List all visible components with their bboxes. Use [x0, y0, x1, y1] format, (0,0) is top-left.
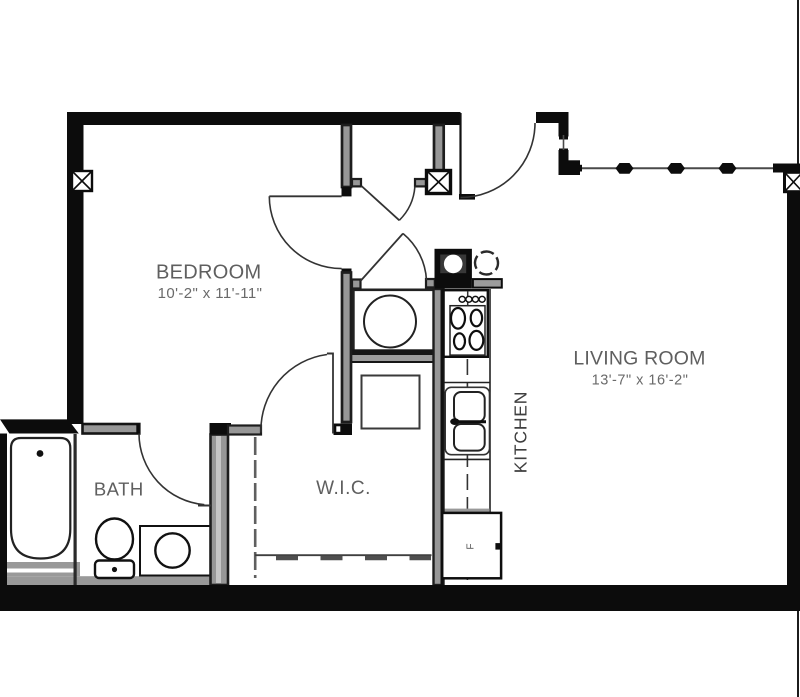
svg-text:BEDROOM: BEDROOM: [156, 262, 261, 284]
svg-text:LIVING ROOM: LIVING ROOM: [573, 348, 705, 370]
svg-text:BATH: BATH: [94, 478, 144, 499]
svg-text:10'-2" x 11'-11": 10'-2" x 11'-11": [158, 285, 263, 302]
svg-text:KITCHEN: KITCHEN: [511, 391, 531, 473]
svg-text:W.I.C.: W.I.C.: [316, 478, 371, 499]
svg-text:F: F: [466, 543, 477, 549]
svg-text:13'-7" x 16'-2": 13'-7" x 16'-2": [592, 373, 689, 389]
